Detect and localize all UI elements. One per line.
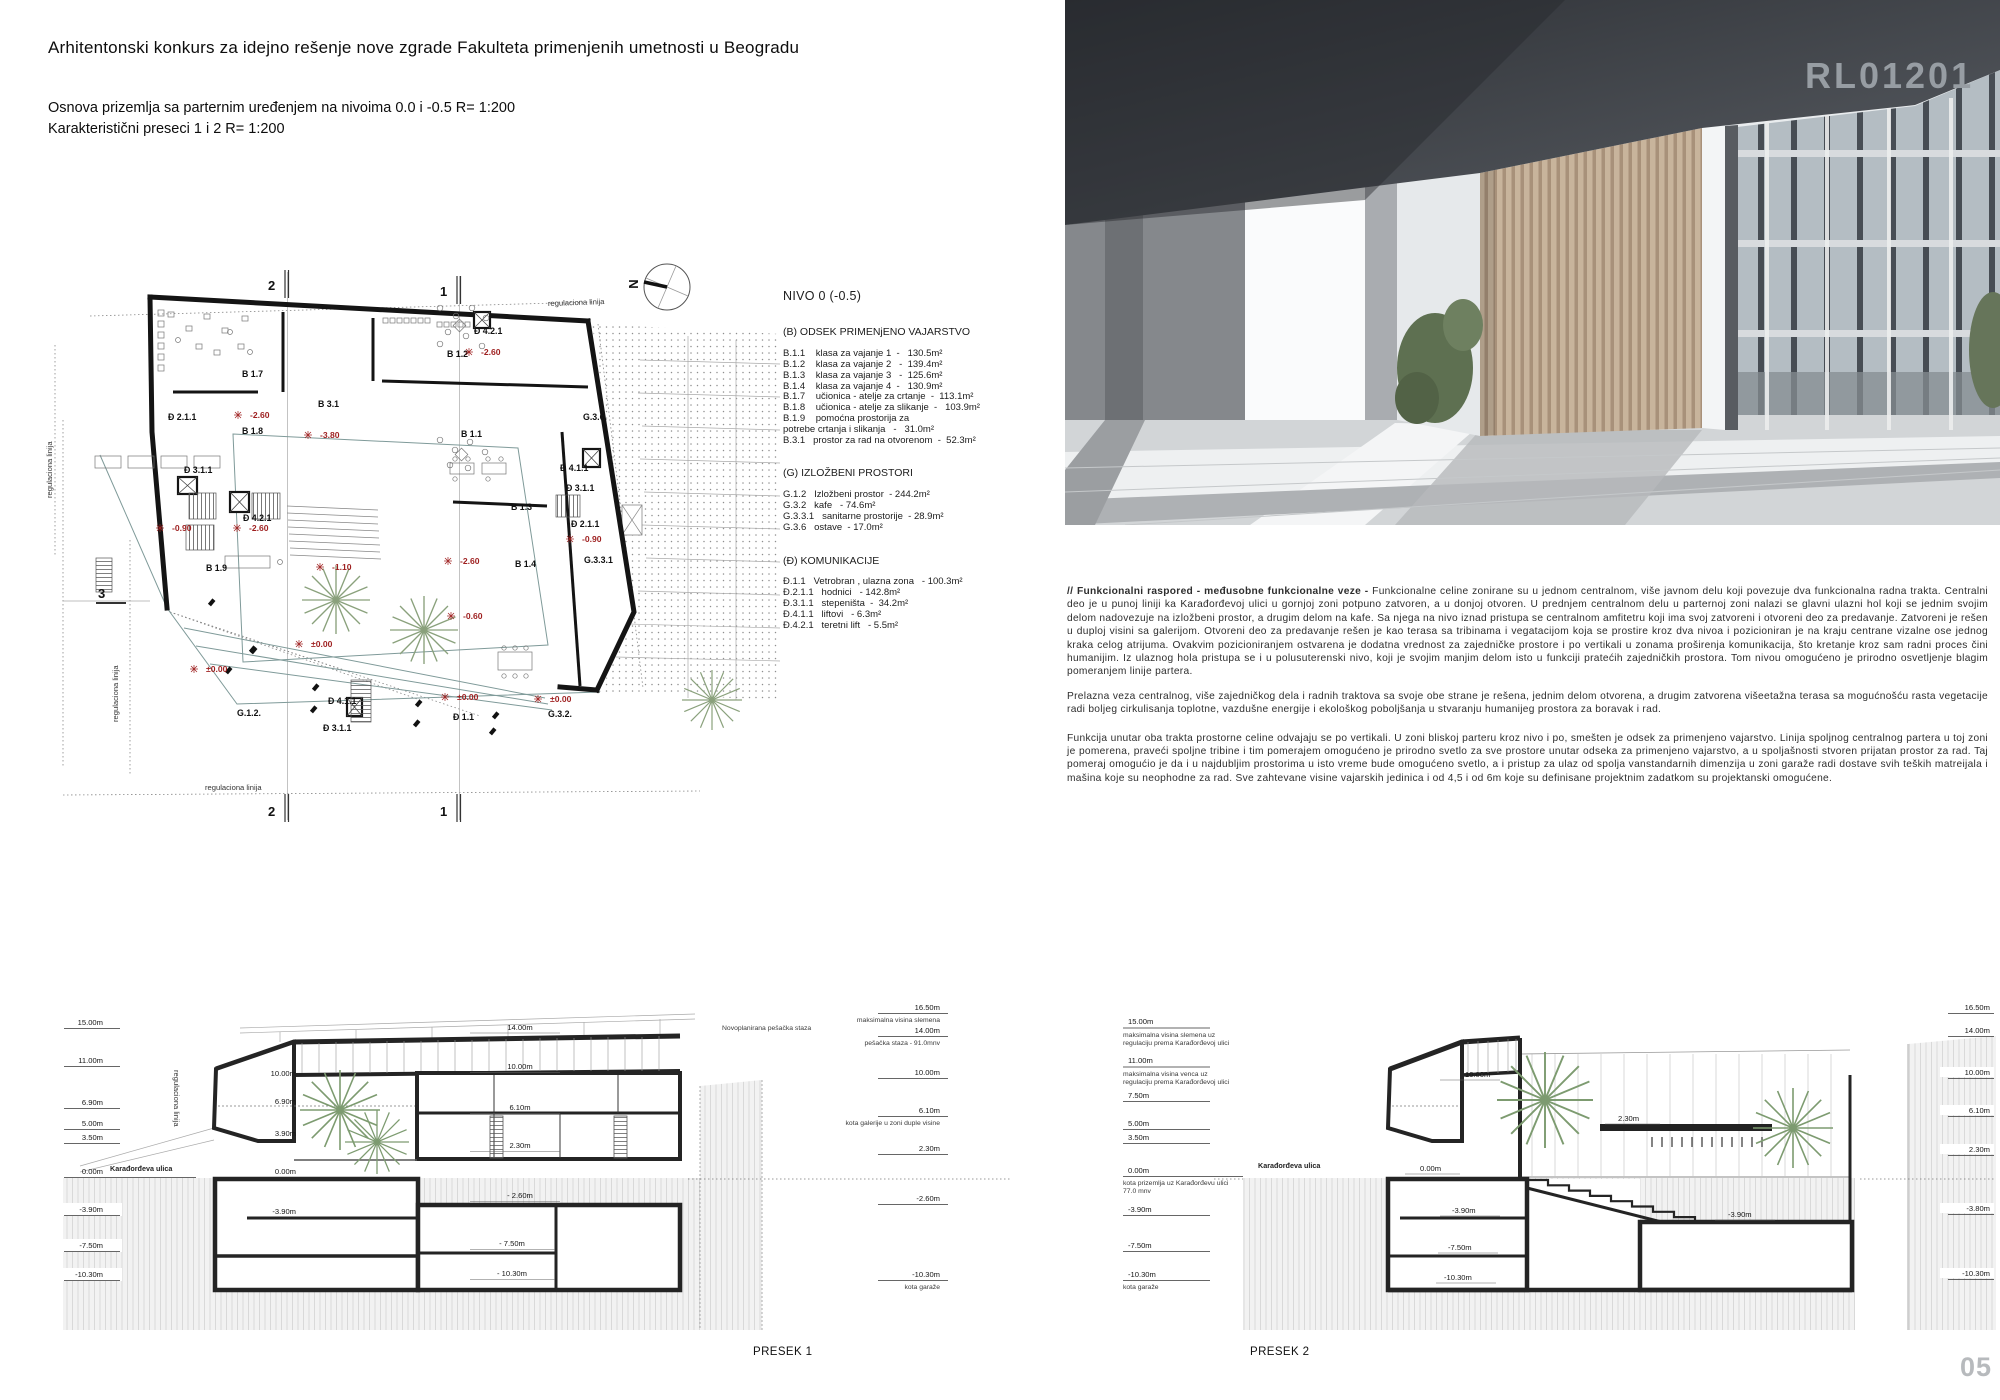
- room-label: Đ 4.2.1: [243, 513, 271, 523]
- level-note: kota prizemlja uz Karađorđevu ulici: [1123, 1180, 1229, 1187]
- level-label: -10.30m: [75, 1270, 103, 1279]
- north-compass: N: [626, 264, 690, 310]
- section-2-drawing: 15.00m 11.00m 7.50m 5.00m 3.50m 0.00m -3…: [1123, 1002, 1996, 1330]
- room-label: G.1.2.: [237, 708, 261, 718]
- level-label: -7.50m: [79, 1241, 103, 1250]
- level-label: 0.00m: [1128, 1166, 1149, 1175]
- level-note: maksimalna visina slemena uz: [1123, 1032, 1216, 1039]
- room-label: B 3.1: [318, 399, 339, 409]
- level-label: - 7.50m: [499, 1239, 525, 1248]
- section-marker: 1: [440, 804, 447, 819]
- regulation-line-label: regulaciona linija: [111, 665, 120, 722]
- room-label: B 1.1: [461, 429, 482, 439]
- room-label: Đ 2.1.1: [571, 519, 599, 529]
- level-label: 14.00m: [1965, 1026, 1990, 1035]
- level-label: -2.60m: [916, 1194, 940, 1203]
- level-label: 3.50m: [1128, 1133, 1149, 1142]
- regulation-line-label: regulaciona linija: [45, 441, 54, 498]
- essay-paragraph-1: // Funkcionalni raspored - međusobne fun…: [1067, 585, 1988, 679]
- level-label: -7.50m: [1448, 1243, 1472, 1252]
- level-label: -3.90m: [1128, 1205, 1152, 1214]
- level-mark: -2.60: [250, 410, 270, 420]
- room-label: Đ 4.2.1: [474, 326, 502, 336]
- program-items-d: Đ.1.1 Vetrobran , ulazna zona - 100.3m² …: [783, 577, 1028, 632]
- section-1-drawing: 15.00m 11.00m 6.90m 5.00m 3.50m 0.00m -3…: [62, 1003, 1010, 1330]
- section-marker: 2: [268, 278, 275, 293]
- level-note: pešačka staza - 91.0mnv: [864, 1040, 940, 1047]
- level-mark: -0.90: [172, 523, 192, 533]
- section-marker: 3: [98, 586, 105, 601]
- program-item: Đ.4.2.1 teretni lift - 5.5m²: [783, 621, 1028, 632]
- level-mark: -2.60: [481, 347, 501, 357]
- street-label: Karađorđeva ulica: [1258, 1161, 1321, 1170]
- room-label: B 1.9: [206, 563, 227, 573]
- room-label: B 1.7: [242, 369, 263, 379]
- level-label: 14.00m: [915, 1026, 940, 1035]
- level-label: 2.30m: [919, 1144, 940, 1153]
- level-note: maksimalna visina venca uz: [1123, 1071, 1208, 1078]
- level-note: 77.0 mnv: [1123, 1188, 1152, 1195]
- room-label: Đ 4.1.1: [560, 463, 588, 473]
- program-heading-d: (Đ) KOMUNIKACIJE: [783, 556, 1028, 567]
- regulation-line-label: regulaciona linija: [172, 1070, 181, 1127]
- level-mark: -0.90: [582, 534, 602, 544]
- level-label: 10.00m: [915, 1068, 940, 1077]
- level-label: -3.90m: [1452, 1206, 1476, 1215]
- program-items-g: G.1.2 Izložbeni prostor - 244.2m² G.3.2 …: [783, 490, 1028, 534]
- level-label: 10.00m: [1965, 1068, 1990, 1077]
- level-mark: -0.60: [463, 611, 483, 621]
- room-label: Đ 3.1.1: [566, 483, 594, 493]
- level-note: kota galerije u zoni duple visine: [846, 1120, 941, 1127]
- level-mark: -2.60: [249, 523, 269, 533]
- room-label: Đ 1.1: [453, 712, 474, 722]
- level-mark: ±0.00: [550, 694, 572, 704]
- level-label: 11.00m: [78, 1056, 103, 1065]
- program-item: B.1.3 klasa za vajanje 3 - 125.6m²: [783, 371, 1028, 382]
- level-label: 0.00m: [275, 1167, 296, 1176]
- level-label: -3.90m: [1728, 1210, 1752, 1219]
- level-label: 7.50m: [1128, 1091, 1149, 1100]
- level-note: regulaciju prema Karađorđevoj ulici: [1123, 1079, 1230, 1086]
- section-marker: 1: [440, 284, 447, 299]
- program-item: G.3.6 ostave - 17.0m²: [783, 523, 1028, 534]
- regulation-line-label: regulaciona linija: [205, 783, 262, 792]
- program-heading-g: (G) IZLOŽBENI PROSTORI: [783, 468, 1028, 479]
- level-label: -3.80m: [1966, 1204, 1990, 1213]
- room-label: G.3.2.: [548, 709, 572, 719]
- level-label: 11.00m: [1128, 1056, 1153, 1065]
- compass-n-label: N: [626, 279, 641, 288]
- floor-plan: N 2 1 2 1 3 regulaciona linija regulacio…: [45, 264, 780, 1127]
- room-label: B 1.2: [447, 349, 468, 359]
- level-label: 3.50m: [82, 1133, 103, 1142]
- level-mark: ±0.00: [457, 692, 479, 702]
- level-label: 10.00m: [271, 1069, 296, 1078]
- room-label: Đ 3.1.1: [323, 723, 351, 733]
- program-list: NIVO 0 (-0.5) (B) ODSEK PRIMENjENO VAJAR…: [783, 291, 1028, 632]
- street-label: Karađorđeva ulica: [110, 1164, 173, 1173]
- level-label: - 2.60m: [507, 1191, 533, 1200]
- essay-lead: // Funkcionalni raspored - međusobne fun…: [1067, 586, 1372, 597]
- level-label: 2.30m: [1618, 1114, 1639, 1123]
- level-label: -10.30m: [1444, 1273, 1472, 1282]
- level-note: maksimalna visina slemena: [857, 1017, 940, 1024]
- program-items-b: B.1.1 klasa za vajanje 1 - 130.5m² B.1.2…: [783, 349, 1028, 447]
- program-item: B.1.2 klasa za vajanje 2 - 139.4m²: [783, 360, 1028, 371]
- level-label: -7.50m: [1128, 1241, 1152, 1250]
- level-label: 0.00m: [1420, 1164, 1441, 1173]
- railing: [1652, 1137, 1762, 1147]
- level-label: 2.30m: [1969, 1145, 1990, 1154]
- level-label: 3.90m: [275, 1129, 296, 1138]
- level-note: kota garaže: [1123, 1284, 1159, 1291]
- room-label: B 1.8: [242, 426, 263, 436]
- room-label: B 1.4: [515, 559, 536, 569]
- section-2-title: PRESEK 2: [1250, 1346, 1309, 1358]
- page-number: 05: [1960, 1352, 1992, 1383]
- level-label: 15.00m: [78, 1018, 103, 1027]
- path-note: Novoplanirana pešačka staza: [722, 1025, 811, 1032]
- room-label: G.3.6.: [583, 412, 607, 422]
- level-note: regulaciju prema Karađorđevoj ulici: [1123, 1040, 1230, 1047]
- level-label: -10.30m: [1962, 1269, 1990, 1278]
- room-label: G.3.3.1: [584, 555, 613, 565]
- level-label: -3.90m: [79, 1205, 103, 1214]
- room-label: Đ 2.1.1: [168, 412, 196, 422]
- level-label: -3.90m: [272, 1207, 296, 1216]
- level-label: 0.00m: [82, 1167, 103, 1176]
- room-label: Đ 3.1.1: [184, 465, 212, 475]
- level-label: 10.00m: [507, 1062, 532, 1071]
- level-label: 6.10m: [1969, 1106, 1990, 1115]
- level-mark: ±0.00: [206, 664, 228, 674]
- level-label: 2.30m: [509, 1141, 530, 1150]
- concept-text: // Funkcionalni raspored - međusobne fun…: [1067, 585, 1988, 785]
- level-label: 10.00m: [1465, 1070, 1490, 1079]
- level-label: 6.90m: [82, 1098, 103, 1107]
- level-title: NIVO 0 (-0.5): [783, 291, 1028, 302]
- section-1-title: PRESEK 1: [753, 1346, 812, 1358]
- level-mark: -1.10: [332, 562, 352, 572]
- level-label: 16.50m: [915, 1003, 940, 1012]
- regulation-line-label: regulaciona linija: [548, 297, 606, 308]
- level-note: kota garaže: [904, 1284, 940, 1291]
- essay-body-1: Funkcionalne celine zonirane su u jednom…: [1067, 586, 1988, 677]
- program-item: B.3.1 prostor za rad na otvorenom - 52.3…: [783, 436, 1028, 447]
- level-label: 5.00m: [1128, 1119, 1149, 1128]
- program-heading-b: (B) ODSEK PRIMENjENO VAJARSTVO: [783, 327, 1028, 338]
- program-item: G.3.3.1 sanitarne prostorije - 28.9m²: [783, 512, 1028, 523]
- level-mark: ±0.00: [311, 639, 333, 649]
- section-marker: 2: [268, 804, 275, 819]
- level-label: 16.50m: [1965, 1003, 1990, 1012]
- competition-board: Arhitentonski konkurs za idejno rešenje …: [0, 0, 2000, 1400]
- level-label: 6.10m: [509, 1103, 530, 1112]
- level-label: 14.00m: [507, 1023, 532, 1032]
- room-label: Đ 4.1.1: [328, 696, 356, 706]
- level-label: 6.90m: [275, 1097, 296, 1106]
- level-label: 6.10m: [919, 1106, 940, 1115]
- level-label: -10.30m: [912, 1270, 940, 1279]
- level-label: 5.00m: [82, 1119, 103, 1128]
- room-label: B 1.3: [511, 502, 532, 512]
- essay-paragraph-3: Funkcija unutar oba trakta prostorne cel…: [1067, 732, 1988, 786]
- level-label: - 10.30m: [497, 1269, 527, 1278]
- level-mark: -2.60: [460, 556, 480, 566]
- level-mark: -3.80: [320, 430, 340, 440]
- level-label: 15.00m: [1128, 1017, 1153, 1026]
- level-label: -10.30m: [1128, 1270, 1156, 1279]
- essay-paragraph-2: Prelazna veza centralnog, više zajedničk…: [1067, 690, 1988, 717]
